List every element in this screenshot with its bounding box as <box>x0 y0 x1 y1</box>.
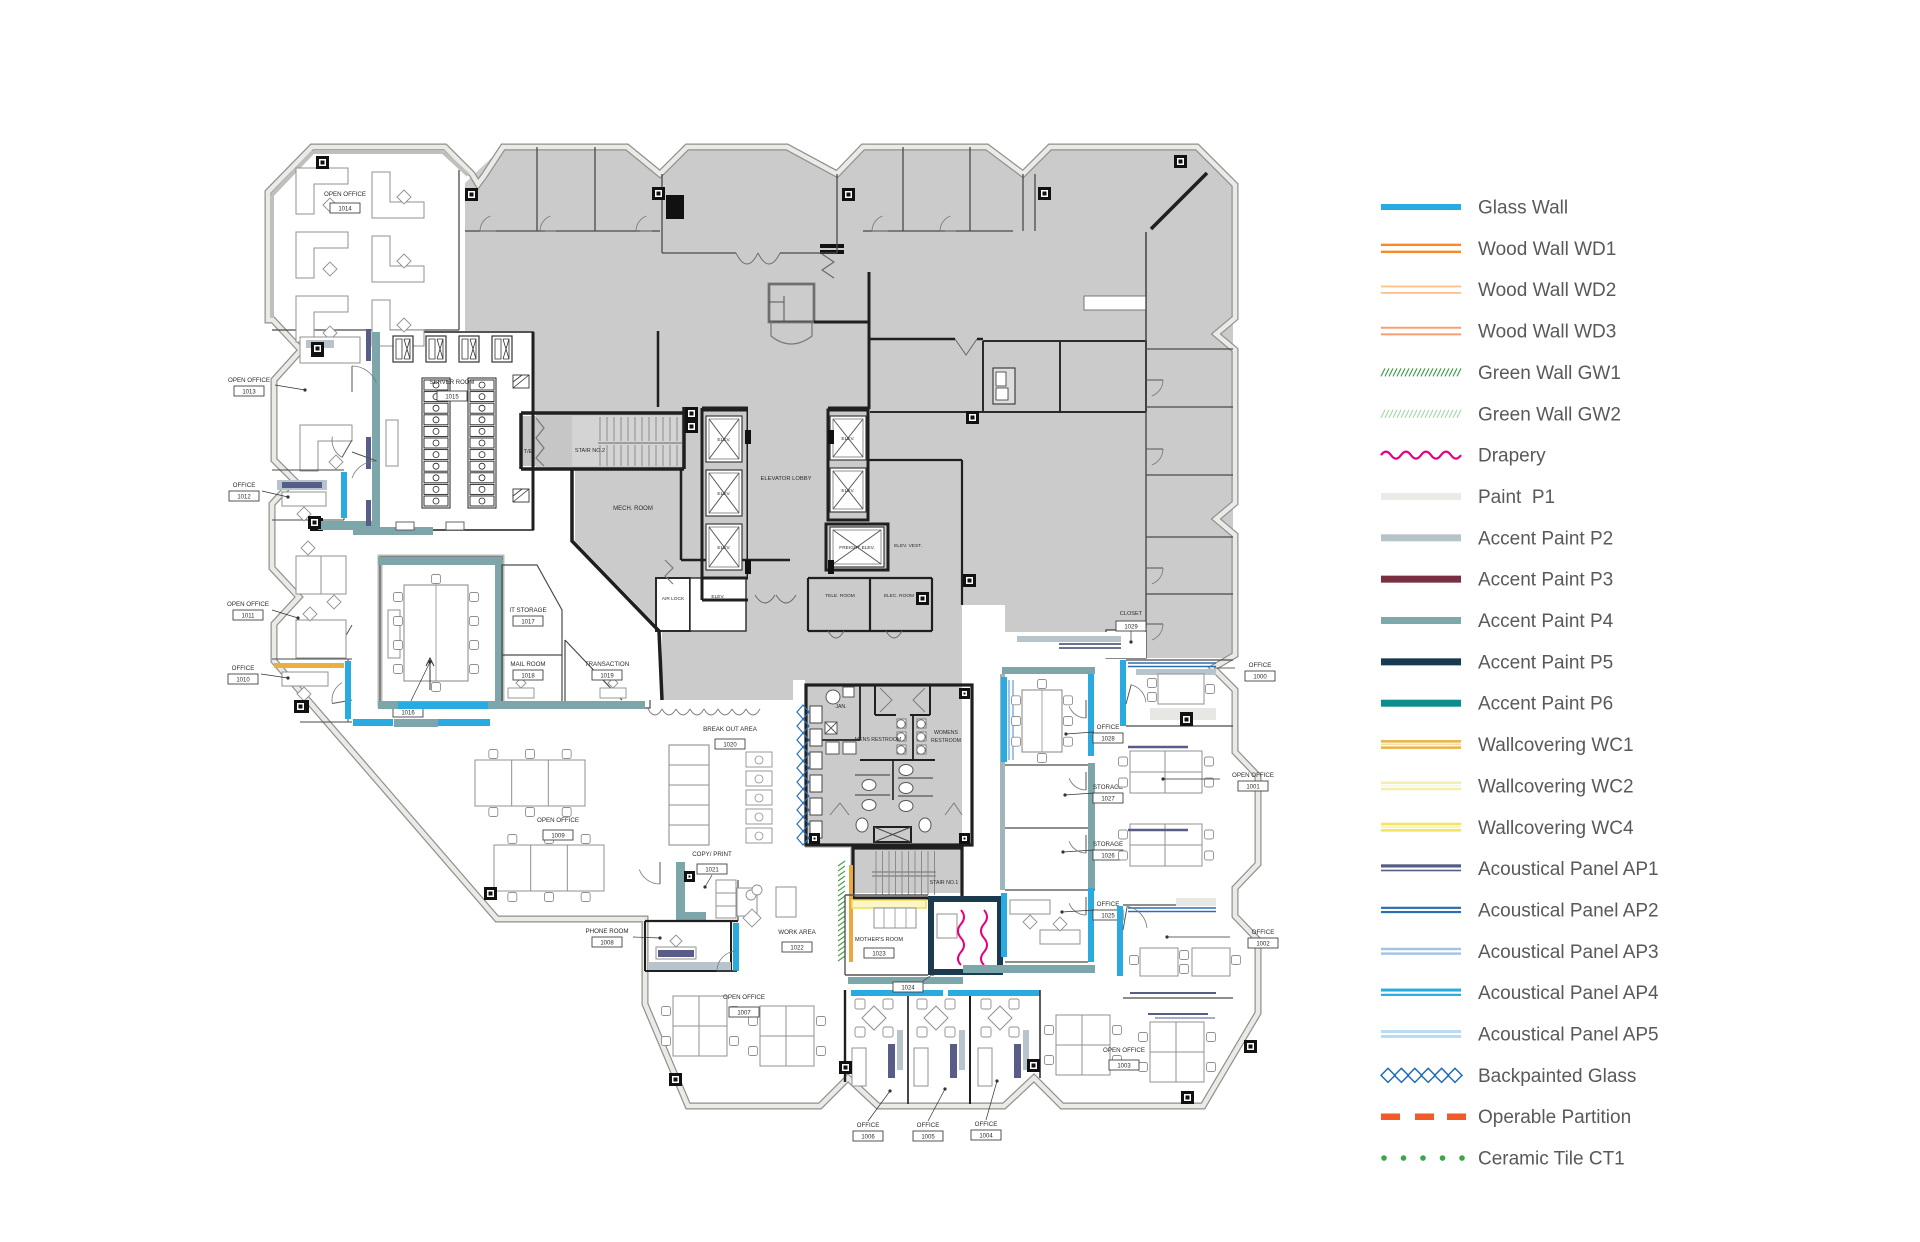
svg-text:MOTHER'S ROOM: MOTHER'S ROOM <box>855 937 903 943</box>
svg-text:Accent Paint P2: Accent Paint P2 <box>1478 528 1613 549</box>
svg-text:OPEN OFFICE: OPEN OFFICE <box>537 817 579 824</box>
svg-text:1006: 1006 <box>861 1135 875 1141</box>
svg-text:OFFICE: OFFICE <box>1252 929 1275 936</box>
svg-text:STAIR NO.2: STAIR NO.2 <box>575 448 605 454</box>
svg-text:JAN.: JAN. <box>835 704 846 710</box>
svg-text:1023: 1023 <box>872 952 886 958</box>
svg-text:1009: 1009 <box>551 834 565 840</box>
svg-text:WOMENS: WOMENS <box>934 730 958 736</box>
svg-text:OPEN OFFICE: OPEN OFFICE <box>1232 772 1274 779</box>
svg-text:1011: 1011 <box>242 614 256 620</box>
svg-text:Acoustical Panel AP1: Acoustical Panel AP1 <box>1478 859 1659 880</box>
svg-text:MAIL ROOM: MAIL ROOM <box>510 661 545 668</box>
svg-text:Acoustical Panel AP5: Acoustical Panel AP5 <box>1478 1025 1659 1046</box>
svg-text:RESTROOM: RESTROOM <box>931 738 961 744</box>
svg-text:OFFICE: OFFICE <box>857 1122 880 1129</box>
svg-text:1026: 1026 <box>1101 854 1115 860</box>
svg-text:1024: 1024 <box>901 986 915 992</box>
svg-text:1021: 1021 <box>705 868 719 874</box>
svg-text:1020: 1020 <box>723 743 737 749</box>
svg-text:OFFICE: OFFICE <box>233 482 256 489</box>
svg-text:Green Wall GW1: Green Wall GW1 <box>1478 363 1621 384</box>
svg-text:STAIR NO.1: STAIR NO.1 <box>930 880 959 886</box>
svg-text:1025: 1025 <box>1101 914 1115 920</box>
svg-text:OFFICE: OFFICE <box>1249 662 1272 669</box>
svg-text:OFFICE: OFFICE <box>232 665 255 672</box>
svg-text:Accent Paint P4: Accent Paint P4 <box>1478 611 1614 632</box>
svg-text:1014: 1014 <box>338 207 352 213</box>
svg-text:COPY/ PRINT: COPY/ PRINT <box>692 851 732 858</box>
svg-text:1001: 1001 <box>1246 785 1260 791</box>
svg-text:Wood Wall WD3: Wood Wall WD3 <box>1478 322 1616 343</box>
svg-text:ELEV.: ELEV. <box>717 437 730 443</box>
svg-text:ELEVATOR LOBBY: ELEVATOR LOBBY <box>761 476 812 482</box>
svg-text:1016: 1016 <box>401 711 415 717</box>
svg-text:Accent Paint P3: Accent Paint P3 <box>1478 570 1613 591</box>
svg-text:1017: 1017 <box>521 620 535 626</box>
svg-text:BREAK OUT AREA: BREAK OUT AREA <box>703 726 758 733</box>
svg-text:ELEV.: ELEV. <box>841 488 854 494</box>
svg-text:1028: 1028 <box>1101 737 1115 743</box>
svg-text:Acoustical Panel AP4: Acoustical Panel AP4 <box>1478 983 1659 1004</box>
svg-text:1010: 1010 <box>236 678 250 684</box>
svg-text:Accent Paint P5: Accent Paint P5 <box>1478 652 1613 673</box>
svg-text:Paint P1: Paint P1 <box>1478 487 1555 508</box>
svg-text:1018: 1018 <box>521 674 535 680</box>
svg-text:ELEC. ROOM: ELEC. ROOM <box>884 593 914 599</box>
svg-text:Operable Partition: Operable Partition <box>1478 1107 1631 1128</box>
svg-text:1004: 1004 <box>979 1134 993 1140</box>
svg-text:OFFICE: OFFICE <box>1097 724 1120 731</box>
svg-text:1002: 1002 <box>1256 942 1270 948</box>
svg-text:OFFICE: OFFICE <box>917 1122 940 1129</box>
svg-text:Wood Wall WD2: Wood Wall WD2 <box>1478 280 1616 301</box>
svg-text:1007: 1007 <box>737 1011 751 1017</box>
svg-text:1019: 1019 <box>600 674 614 680</box>
svg-text:CLOSET: CLOSET <box>1120 611 1143 617</box>
svg-text:OPEN OFFICE: OPEN OFFICE <box>227 601 269 608</box>
svg-text:Green Wall GW2: Green Wall GW2 <box>1478 404 1621 425</box>
svg-text:Wallcovering WC2: Wallcovering WC2 <box>1478 776 1634 797</box>
svg-text:Acoustical Panel AP2: Acoustical Panel AP2 <box>1478 900 1659 921</box>
svg-text:TELE. ROOM: TELE. ROOM <box>825 593 855 599</box>
svg-text:Ceramic Tile CT1: Ceramic Tile CT1 <box>1478 1149 1625 1170</box>
svg-text:1012: 1012 <box>237 495 251 501</box>
svg-text:MECH. ROOM: MECH. ROOM <box>613 506 653 512</box>
svg-text:1015: 1015 <box>445 395 459 401</box>
svg-text:OPEN OFFICE: OPEN OFFICE <box>324 191 366 198</box>
svg-text:1005: 1005 <box>921 1135 935 1141</box>
svg-text:1022: 1022 <box>790 946 804 952</box>
svg-text:OPEN OFFICE: OPEN OFFICE <box>723 994 765 1001</box>
svg-text:IT STORAGE: IT STORAGE <box>509 607 546 614</box>
svg-text:ELEV.: ELEV. <box>717 491 730 497</box>
svg-text:1013: 1013 <box>242 390 256 396</box>
svg-text:OFFICE: OFFICE <box>975 1121 998 1128</box>
svg-text:FREIGHT ELEV.: FREIGHT ELEV. <box>839 545 874 551</box>
svg-text:ELEV.: ELEV. <box>841 436 854 442</box>
svg-text:AIR LOCK: AIR LOCK <box>662 596 685 602</box>
svg-text:1027: 1027 <box>1101 797 1115 803</box>
svg-text:Glass Wall: Glass Wall <box>1478 198 1568 219</box>
svg-text:PHONE ROOM: PHONE ROOM <box>586 928 629 935</box>
svg-text:1029: 1029 <box>1124 625 1138 631</box>
svg-text:OPEN OFFICE: OPEN OFFICE <box>228 377 270 384</box>
svg-text:OFFICE: OFFICE <box>1097 901 1120 908</box>
svg-text:Drapery: Drapery <box>1478 446 1546 467</box>
svg-text:1008: 1008 <box>600 941 614 947</box>
svg-text:OPEN OFFICE: OPEN OFFICE <box>1103 1047 1145 1054</box>
svg-text:MENS RESTROOM: MENS RESTROOM <box>855 737 901 743</box>
svg-text:Acoustical Panel AP3: Acoustical Panel AP3 <box>1478 942 1659 963</box>
svg-text:TRANSACTION: TRANSACTION <box>585 661 629 668</box>
svg-text:1003: 1003 <box>1117 1064 1131 1070</box>
svg-text:Wallcovering WC1: Wallcovering WC1 <box>1478 735 1634 756</box>
svg-text:WORK AREA: WORK AREA <box>778 929 816 936</box>
svg-text:T/E: T/E <box>524 449 533 455</box>
svg-text:Wood Wall WD1: Wood Wall WD1 <box>1478 239 1616 260</box>
svg-text:Accent Paint P6: Accent Paint P6 <box>1478 694 1613 715</box>
svg-text:STORAGE: STORAGE <box>1093 841 1123 848</box>
svg-text:ELEV.: ELEV. <box>711 594 724 600</box>
svg-text:1000: 1000 <box>1253 675 1267 681</box>
svg-text:ELEV. VEST.: ELEV. VEST. <box>894 543 922 549</box>
svg-text:ELEV.: ELEV. <box>717 545 730 551</box>
svg-text:Backpainted Glass: Backpainted Glass <box>1478 1066 1636 1087</box>
svg-text:SERVER ROOM: SERVER ROOM <box>430 380 475 386</box>
svg-text:Wallcovering WC4: Wallcovering WC4 <box>1478 818 1634 839</box>
